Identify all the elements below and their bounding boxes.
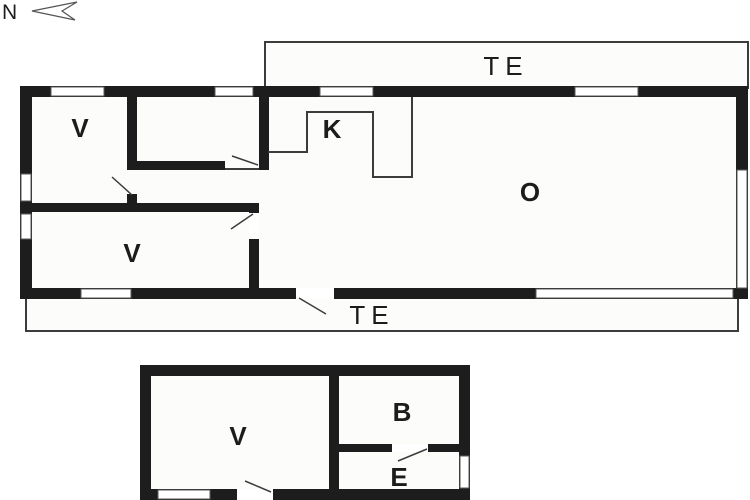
room-label-living-room: O [520, 177, 540, 207]
terrace-top: TE [265, 42, 748, 88]
door-gap-terrace [296, 288, 334, 299]
room-label-entry: E [390, 462, 407, 492]
window-left-1 [21, 174, 31, 201]
room-label-kitchen: K [323, 114, 342, 144]
window-bottom-glass [536, 289, 733, 298]
annex-wall-top [140, 365, 470, 376]
room-label-bathroom: B [393, 397, 412, 427]
room-label-bedroom-bottom-left: V [123, 238, 141, 268]
annex-window-right [460, 456, 469, 488]
window-top-1 [51, 87, 104, 96]
terrace-top-label: TE [483, 51, 528, 81]
annex-wall-v-right [329, 365, 339, 500]
compass: N [2, 1, 77, 24]
compass-n-label: N [2, 1, 17, 24]
terrace-bottom: TE [26, 297, 738, 331]
annex-floor [140, 365, 470, 500]
terrace-bottom-label: TE [349, 300, 394, 330]
wall-midroom-right [259, 86, 269, 170]
wall-bedroom2-top [20, 203, 259, 212]
room-label-bedroom-top-left: V [71, 113, 89, 143]
window-right-glass [737, 170, 747, 288]
window-left-2 [21, 214, 31, 239]
annex-building: V B E [140, 365, 470, 500]
door-gap-bedroom2 [249, 213, 259, 239]
floor-plan-canvas: N TE TE [0, 0, 750, 500]
main-building: V V K O [20, 86, 748, 314]
annex-wall-left [140, 365, 151, 500]
window-bottom-1 [81, 289, 131, 298]
north-arrow-icon [32, 2, 77, 20]
window-top-3 [320, 87, 373, 96]
window-top-2 [215, 87, 253, 96]
room-label-annex-v: V [229, 421, 247, 451]
window-top-4 [575, 87, 638, 96]
wall-bedroom1-right [127, 86, 137, 170]
wall-midroom-bottom [137, 161, 225, 170]
floor-plan: N TE TE [0, 0, 750, 500]
annex-window-bottom [158, 490, 210, 499]
